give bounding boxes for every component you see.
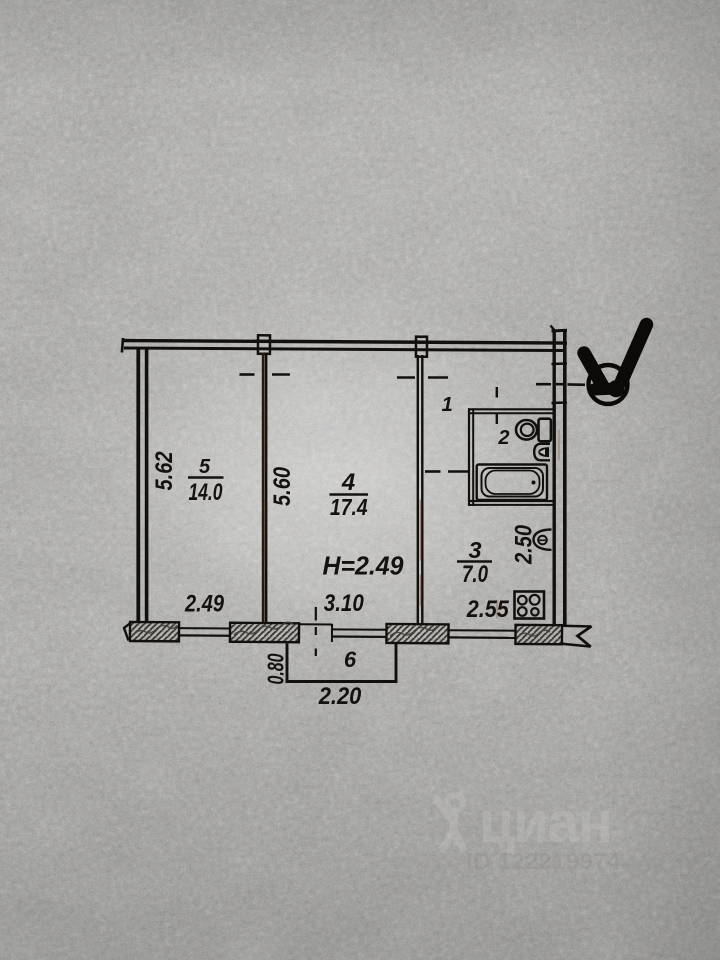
svg-text:2.20: 2.20 <box>318 683 362 710</box>
svg-text:4: 4 <box>341 469 355 496</box>
svg-text:2.50: 2.50 <box>511 524 538 564</box>
svg-text:2.55: 2.55 <box>466 596 509 623</box>
svg-text:7.0: 7.0 <box>462 561 488 588</box>
svg-text:5: 5 <box>199 456 211 478</box>
svg-text:3: 3 <box>468 537 481 563</box>
svg-text:ID 122219974: ID 122219974 <box>466 848 620 874</box>
svg-text:3.10: 3.10 <box>324 590 365 617</box>
svg-text:2.49: 2.49 <box>184 591 224 618</box>
svg-text:17.4: 17.4 <box>330 494 368 520</box>
svg-text:0.80: 0.80 <box>263 653 289 684</box>
svg-text:5.62: 5.62 <box>151 451 178 491</box>
svg-text:H=2.49: H=2.49 <box>323 551 405 581</box>
svg-text:циан: циан <box>479 790 613 855</box>
svg-text:1: 1 <box>442 394 453 416</box>
svg-text:6: 6 <box>344 647 357 672</box>
svg-text:14.0: 14.0 <box>189 479 223 506</box>
svg-text:5.60: 5.60 <box>269 466 296 506</box>
svg-text:2: 2 <box>497 427 509 449</box>
